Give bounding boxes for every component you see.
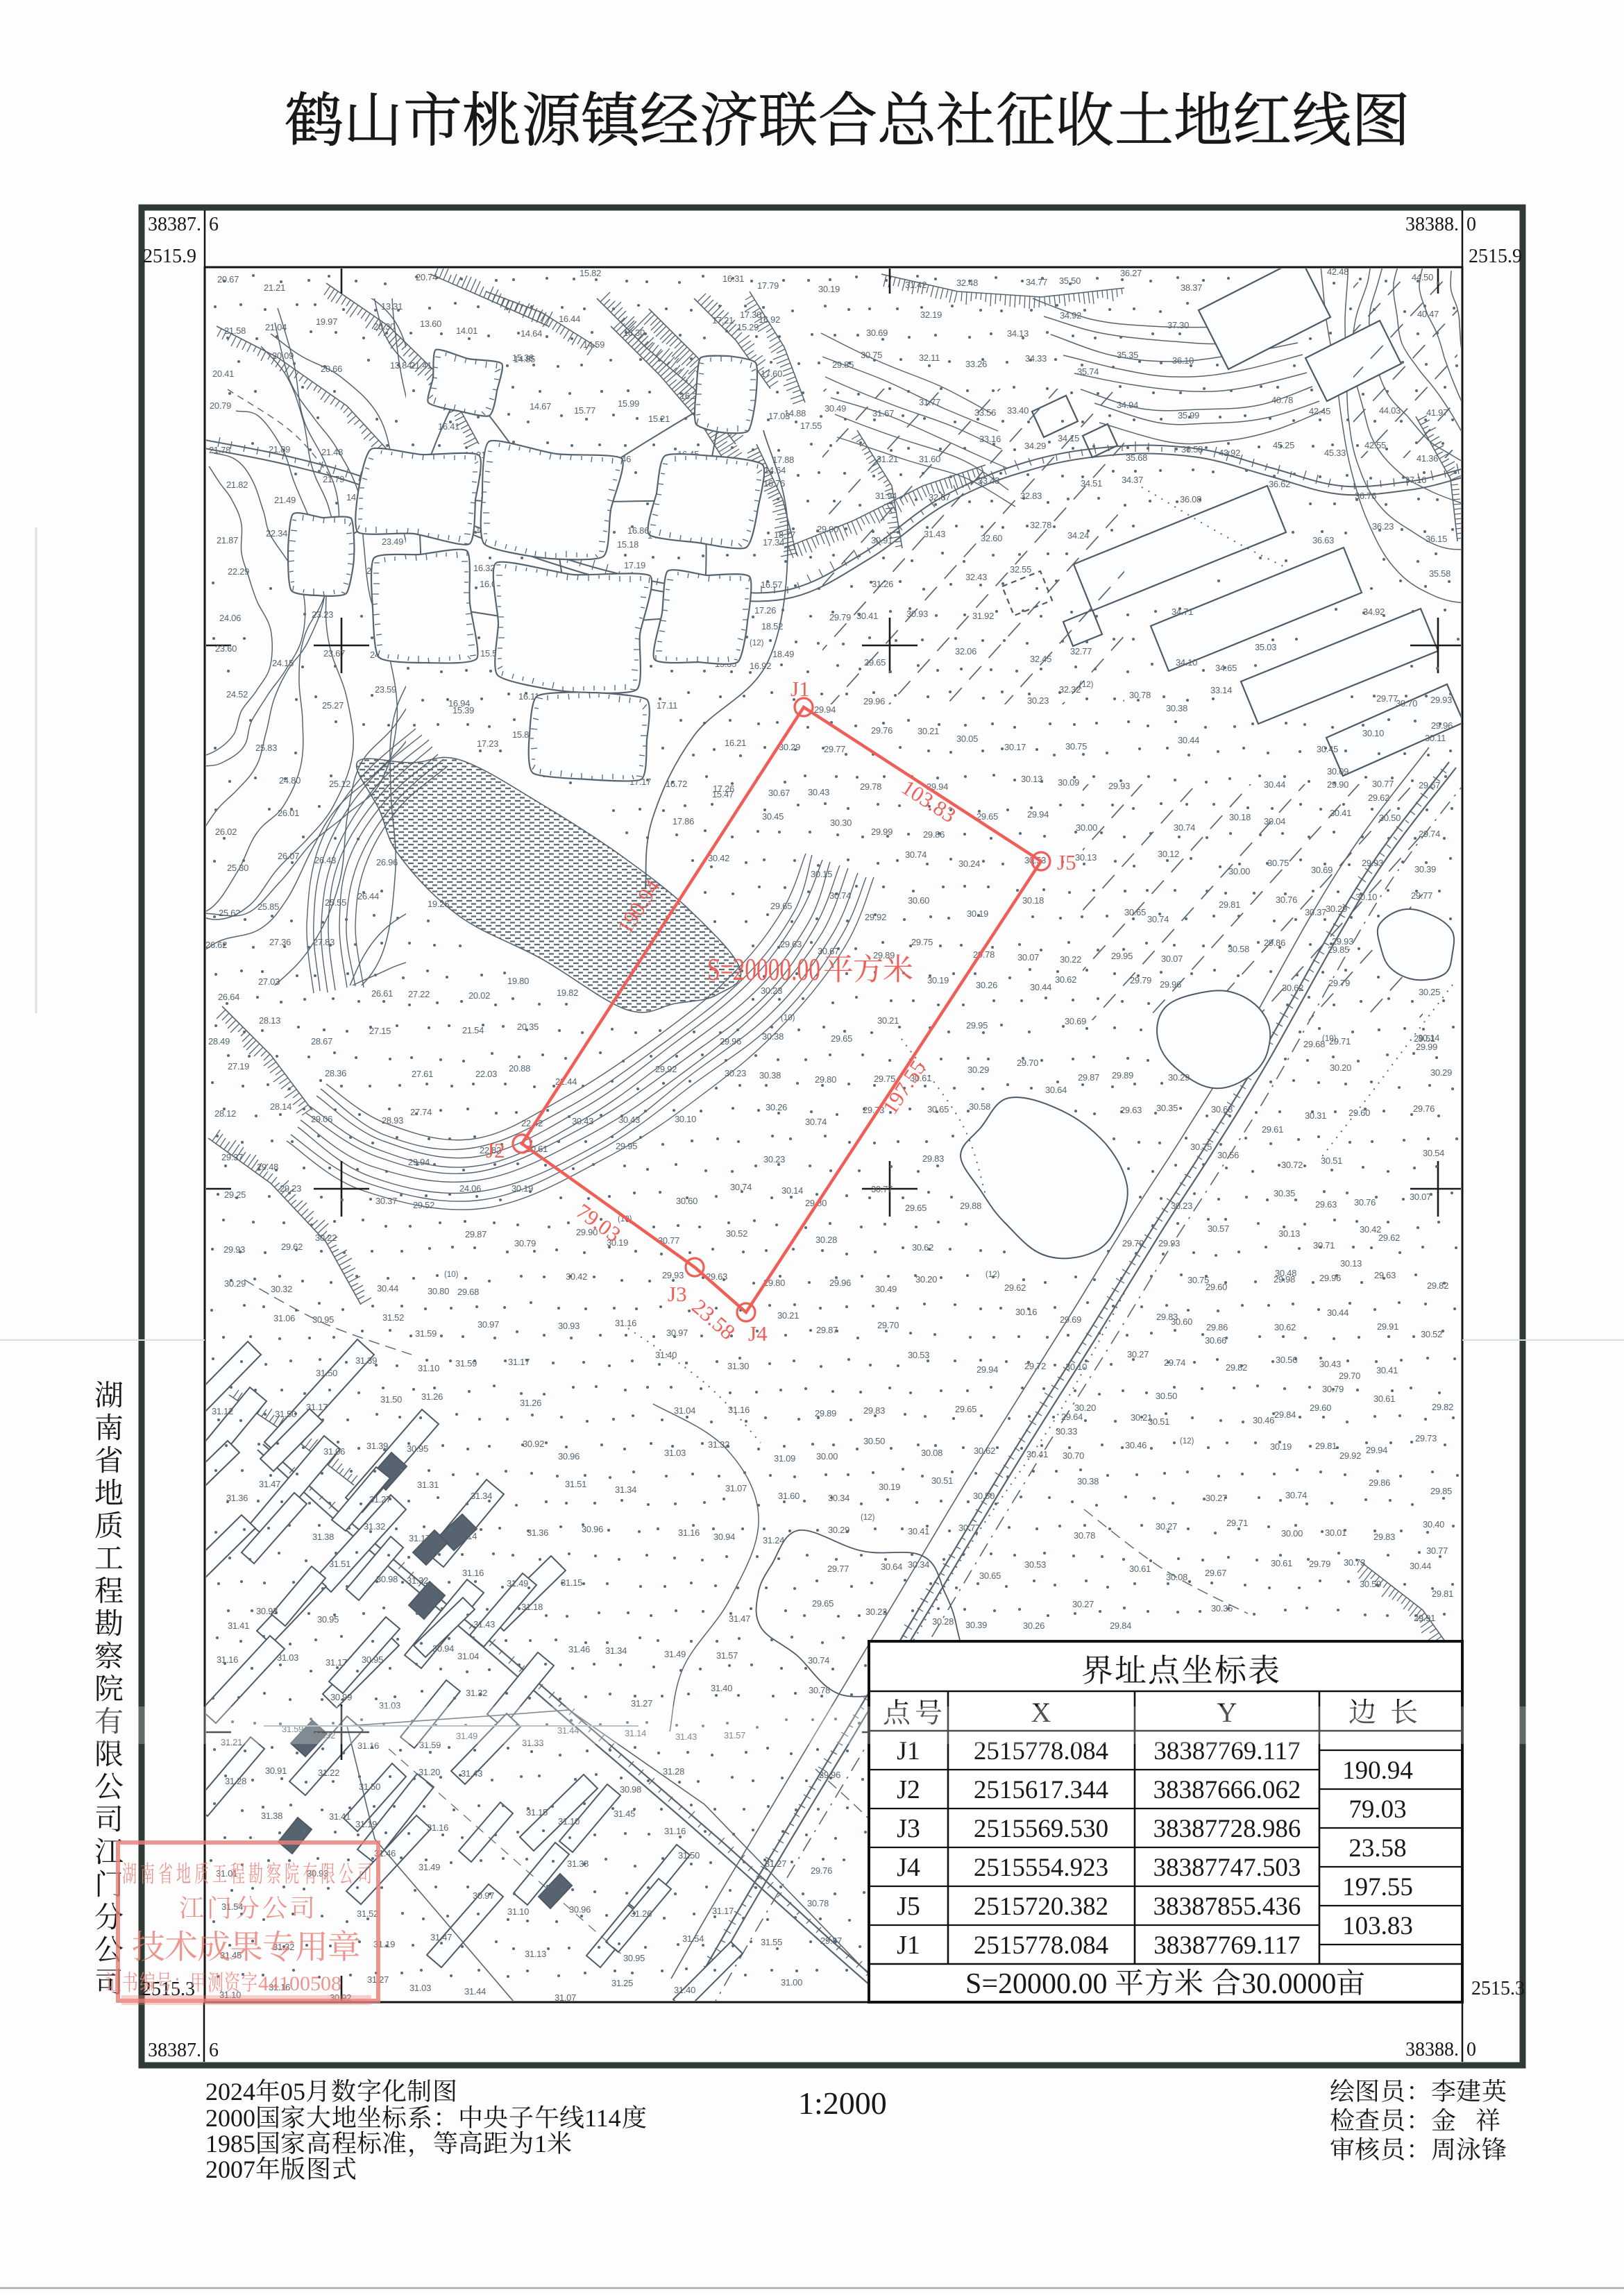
svg-text:30.49: 30.49 (824, 403, 846, 414)
svg-text:28.67: 28.67 (311, 1036, 332, 1047)
svg-text:17.26: 17.26 (754, 605, 776, 616)
svg-text:23.59: 23.59 (375, 684, 396, 695)
svg-text:31.10: 31.10 (507, 1906, 529, 1917)
svg-text:30.37: 30.37 (1305, 907, 1326, 917)
svg-text:31.17: 31.17 (712, 1906, 734, 1916)
svg-text:J5: J5 (1057, 850, 1076, 874)
svg-text:30.41: 30.41 (1330, 808, 1351, 818)
svg-text:35.50: 35.50 (1059, 276, 1081, 286)
svg-text:30.69: 30.69 (1065, 1016, 1086, 1026)
svg-text:41.97: 41.97 (1426, 407, 1448, 418)
svg-text:30.68: 30.68 (1211, 1104, 1233, 1115)
svg-text:30.19: 30.19 (927, 975, 949, 985)
svg-text:16.31: 16.31 (722, 273, 744, 284)
svg-text:21.54: 21.54 (462, 1025, 484, 1035)
svg-text:30.04: 30.04 (1264, 816, 1285, 827)
svg-text:31.44: 31.44 (464, 1986, 486, 1997)
svg-text:30.38: 30.38 (759, 1070, 781, 1081)
svg-text:30.23: 30.23 (1171, 1201, 1192, 1211)
svg-text:30.21: 30.21 (877, 1015, 899, 1026)
svg-text:32.78: 32.78 (1030, 520, 1051, 530)
svg-text:31.36: 31.36 (527, 1527, 548, 1538)
svg-text:33.14: 33.14 (1210, 685, 1232, 695)
svg-text:29.83: 29.83 (863, 1405, 885, 1416)
svg-text:30.26: 30.26 (976, 980, 997, 990)
svg-text:34.92: 34.92 (1060, 310, 1081, 321)
svg-text:38387747.503: 38387747.503 (1153, 1854, 1301, 1882)
svg-text:30.42: 30.42 (566, 1271, 587, 1282)
svg-text:29.73: 29.73 (1415, 1433, 1437, 1443)
svg-text:25.27: 25.27 (322, 700, 344, 711)
svg-text:30.40: 30.40 (1423, 1519, 1444, 1530)
svg-text:17.86: 17.86 (673, 816, 694, 827)
svg-text:30.96: 30.96 (558, 1451, 580, 1462)
svg-text:31.26: 31.26 (520, 1398, 541, 1408)
svg-text:29.87: 29.87 (816, 1325, 838, 1335)
svg-text:30.65: 30.65 (927, 1104, 949, 1115)
svg-text:29.67: 29.67 (1419, 780, 1440, 790)
svg-text:30.50: 30.50 (973, 1491, 995, 1501)
svg-text:29.78: 29.78 (860, 781, 881, 792)
svg-text:30.23: 30.23 (763, 1154, 785, 1165)
svg-text:30.54: 30.54 (1423, 1148, 1444, 1158)
svg-text:29.86: 29.86 (923, 829, 945, 840)
svg-text:30.23: 30.23 (761, 985, 782, 996)
svg-text:31.17: 31.17 (325, 1657, 347, 1668)
svg-text:29.96: 29.96 (863, 696, 885, 706)
svg-text:15.18: 15.18 (617, 539, 638, 550)
svg-text:25.12: 25.12 (329, 779, 350, 789)
svg-text:35.68: 35.68 (1126, 452, 1147, 463)
svg-text:27.36: 27.36 (269, 937, 291, 947)
svg-text:24.80: 24.80 (279, 775, 301, 786)
svg-text:35.74: 35.74 (1077, 366, 1099, 377)
svg-text:31.43: 31.43 (924, 529, 945, 539)
svg-text:30.01: 30.01 (1325, 1527, 1346, 1538)
svg-text:30.43: 30.43 (572, 1116, 593, 1126)
svg-text:30.96: 30.96 (582, 1524, 603, 1534)
svg-text:33.26: 33.26 (965, 359, 987, 369)
svg-text:29.63: 29.63 (1374, 1270, 1396, 1280)
svg-text:J2: J2 (486, 1138, 505, 1162)
svg-text:31.13: 31.13 (525, 1949, 546, 1959)
svg-text:16.32: 16.32 (473, 563, 495, 573)
svg-text:31.41: 31.41 (329, 1811, 350, 1822)
svg-text:31.21: 31.21 (877, 454, 898, 464)
svg-text:2024: 2024 (205, 2078, 255, 2106)
svg-text:38387.: 38387. (148, 2040, 201, 2061)
svg-text:30.20: 30.20 (1330, 1062, 1351, 1073)
svg-text:30.73: 30.73 (1344, 1557, 1365, 1568)
svg-text:29.82: 29.82 (1432, 1402, 1453, 1412)
svg-text:30.19: 30.19 (511, 1183, 533, 1194)
svg-text:31.16: 31.16 (728, 1405, 750, 1415)
svg-text:32.43: 32.43 (965, 572, 987, 582)
svg-text:29.95: 29.95 (1111, 951, 1133, 961)
svg-text:31.94: 31.94 (875, 491, 897, 501)
svg-text:30.97: 30.97 (473, 1890, 494, 1901)
svg-text:31.16: 31.16 (678, 1527, 700, 1538)
svg-text:30.93: 30.93 (906, 609, 928, 619)
svg-text:36.15: 36.15 (1426, 534, 1447, 544)
svg-text:31.50: 31.50 (359, 1781, 380, 1792)
svg-text:30.49: 30.49 (875, 1284, 897, 1294)
svg-text:29.96: 29.96 (829, 1278, 851, 1288)
svg-text:30.75: 30.75 (1190, 1142, 1212, 1152)
svg-text:30.43: 30.43 (808, 787, 829, 797)
svg-text:30.94: 30.94 (432, 1643, 454, 1654)
svg-text:38388.: 38388. (1405, 214, 1459, 235)
svg-text:30.10: 30.10 (1065, 1362, 1087, 1372)
svg-text:30.92: 30.92 (523, 1439, 544, 1449)
svg-text:15.38: 15.38 (512, 353, 534, 363)
svg-text:29.96: 29.96 (1160, 979, 1181, 990)
svg-text:27.74: 27.74 (410, 1107, 432, 1117)
svg-text:15.47: 15.47 (712, 789, 734, 799)
svg-text:30.26: 30.26 (1023, 1620, 1044, 1631)
svg-text:S=20000.00: S=20000.00 (707, 951, 820, 987)
svg-text:29.93: 29.93 (662, 1270, 684, 1280)
svg-text:31.25: 31.25 (611, 1978, 633, 1988)
svg-text:30.74: 30.74 (730, 1182, 752, 1192)
svg-text:15.21: 15.21 (648, 414, 670, 424)
svg-text:26.07: 26.07 (278, 851, 299, 861)
svg-text:29.89: 29.89 (873, 950, 895, 960)
svg-text:1985: 1985 (205, 2130, 255, 2158)
svg-text:15.77: 15.77 (574, 405, 595, 416)
svg-text:21.78: 21.78 (209, 445, 230, 455)
svg-text:35.03: 35.03 (1255, 642, 1276, 652)
svg-text:31.54: 31.54 (682, 1933, 704, 1944)
svg-text:2515554.923: 2515554.923 (974, 1854, 1108, 1882)
svg-text:30.19: 30.19 (818, 284, 840, 294)
svg-text:31.07: 31.07 (725, 1483, 747, 1493)
svg-text:34.77: 34.77 (1026, 277, 1047, 287)
svg-text:29.70: 29.70 (877, 1320, 899, 1330)
svg-text:30.27: 30.27 (1156, 1521, 1177, 1532)
svg-text:31.40: 31.40 (711, 1683, 732, 1693)
svg-text:29.93: 29.93 (223, 1244, 245, 1255)
svg-text:32.48: 32.48 (956, 278, 978, 288)
svg-text:0: 0 (1466, 2039, 1476, 2060)
svg-text:34.65: 34.65 (1215, 663, 1237, 673)
svg-text:30.59: 30.59 (1360, 1579, 1381, 1589)
svg-text:30.23: 30.23 (865, 1607, 887, 1617)
svg-text:30.08: 30.08 (1166, 1572, 1187, 1582)
svg-text:21.87: 21.87 (217, 535, 238, 545)
svg-text:30.35: 30.35 (1274, 1188, 1295, 1199)
svg-text:31.51: 31.51 (329, 1559, 350, 1569)
svg-text:30.29: 30.29 (1168, 1072, 1190, 1083)
svg-text:20.30: 20.30 (373, 321, 395, 332)
svg-text:29.83: 29.83 (922, 1153, 944, 1164)
svg-text:30.14: 30.14 (781, 1185, 803, 1196)
svg-text:30.33: 30.33 (1056, 1426, 1077, 1437)
svg-text:17.60: 17.60 (761, 369, 782, 379)
svg-text:34.24: 34.24 (1067, 530, 1089, 541)
svg-text:32.60: 32.60 (981, 533, 1002, 543)
svg-text:30.65: 30.65 (979, 1570, 1001, 1581)
svg-text:30.71: 30.71 (1313, 1240, 1335, 1251)
svg-text:30.46: 30.46 (1253, 1415, 1274, 1425)
svg-text:20.67: 20.67 (217, 274, 239, 285)
svg-text:20.74: 20.74 (416, 272, 437, 282)
svg-text:14.64: 14.64 (764, 465, 786, 475)
svg-text:2007: 2007 (205, 2156, 255, 2183)
svg-text:0: 0 (1466, 214, 1476, 235)
svg-text:31.49: 31.49 (418, 1862, 440, 1872)
svg-text:13.60: 13.60 (420, 319, 441, 329)
svg-text:30.62: 30.62 (1274, 1322, 1296, 1332)
svg-text:30.80: 30.80 (428, 1286, 449, 1296)
svg-text:14.88: 14.88 (784, 408, 806, 418)
svg-text:25.30: 25.30 (227, 863, 248, 873)
svg-text:17.11: 17.11 (657, 700, 677, 711)
svg-text:30.98: 30.98 (376, 1574, 398, 1584)
svg-text:32.06: 32.06 (955, 646, 976, 657)
svg-text:30.77: 30.77 (1372, 779, 1394, 789)
svg-text:30.91: 30.91 (871, 535, 893, 545)
svg-text:29.76: 29.76 (811, 1865, 832, 1876)
svg-text:30.19: 30.19 (1270, 1441, 1292, 1452)
svg-text:29.61: 29.61 (1262, 1124, 1283, 1135)
svg-text:36.58: 36.58 (1181, 444, 1203, 455)
svg-text:32.19: 32.19 (920, 310, 942, 320)
svg-text:30.05: 30.05 (956, 734, 978, 744)
svg-text:J4: J4 (897, 1853, 920, 1882)
svg-text:29.81: 29.81 (1315, 1441, 1337, 1451)
svg-text:30.07: 30.07 (1017, 952, 1039, 963)
svg-text:29.94: 29.94 (1027, 809, 1049, 820)
svg-text:30.31: 30.31 (1305, 1110, 1326, 1121)
svg-text:31.39: 31.39 (366, 1441, 388, 1451)
svg-text:29.86: 29.86 (1369, 1477, 1390, 1488)
svg-text:29.81: 29.81 (1219, 899, 1240, 910)
svg-text:31.49: 31.49 (507, 1578, 528, 1589)
svg-text:30.32: 30.32 (271, 1284, 292, 1294)
svg-text:31.39: 31.39 (355, 1355, 377, 1366)
svg-text:29.70: 29.70 (1339, 1371, 1360, 1381)
svg-text:30.14: 30.14 (1418, 1033, 1439, 1043)
svg-text:30.77: 30.77 (871, 1184, 893, 1194)
svg-text:24.15: 24.15 (272, 658, 294, 668)
svg-text:30.61: 30.61 (1129, 1564, 1151, 1574)
svg-text:30.75: 30.75 (1267, 858, 1289, 868)
svg-text:31.19: 31.19 (355, 1819, 377, 1829)
svg-text:31.12: 31.12 (212, 1406, 233, 1416)
svg-text:30.29: 30.29 (1326, 904, 1347, 914)
svg-text:17.23: 17.23 (477, 738, 498, 749)
svg-text:30.93: 30.93 (558, 1321, 580, 1331)
svg-text:31.10: 31.10 (418, 1363, 439, 1373)
svg-text:30.74: 30.74 (808, 1655, 829, 1666)
svg-text:35.99: 35.99 (1178, 410, 1199, 421)
svg-text:29.83: 29.83 (1156, 1312, 1178, 1322)
svg-text:31.00: 31.00 (781, 1977, 802, 1988)
svg-text:29.65: 29.65 (955, 1404, 976, 1414)
svg-text:30.60: 30.60 (908, 895, 929, 906)
svg-text:2515.9: 2515.9 (143, 246, 196, 267)
svg-text:29.62: 29.62 (1368, 793, 1389, 803)
svg-text:14.64: 14.64 (521, 328, 542, 339)
svg-text:45.25: 45.25 (1273, 440, 1294, 450)
svg-text:26.43: 26.43 (314, 855, 336, 865)
svg-text:30.22: 30.22 (1060, 954, 1081, 965)
svg-text:34.71: 34.71 (1172, 607, 1193, 617)
svg-text:30.34: 30.34 (828, 1493, 849, 1503)
svg-text:29.62: 29.62 (1004, 1282, 1026, 1293)
svg-text:29.91: 29.91 (1414, 1613, 1435, 1623)
svg-text:30.52: 30.52 (726, 1228, 747, 1239)
svg-text:30.00: 30.00 (1281, 1528, 1303, 1539)
svg-text:29.75: 29.75 (911, 937, 933, 947)
svg-text:16.44: 16.44 (559, 314, 580, 324)
svg-text:29.52: 29.52 (413, 1200, 434, 1210)
svg-text:31.03: 31.03 (664, 1448, 686, 1458)
svg-text:21.21: 21.21 (264, 282, 285, 293)
svg-text:30.78: 30.78 (1074, 1530, 1095, 1541)
svg-text:29.85: 29.85 (832, 359, 854, 370)
svg-text:30.62: 30.62 (912, 1242, 933, 1253)
svg-text:30.38: 30.38 (1166, 703, 1187, 713)
svg-text:30.76: 30.76 (1276, 895, 1297, 905)
svg-text:30.25: 30.25 (1419, 987, 1440, 997)
svg-text:22.34: 22.34 (266, 528, 287, 539)
svg-text:30.21: 30.21 (917, 726, 939, 736)
svg-text:J2: J2 (897, 1775, 920, 1804)
svg-text:31.26: 31.26 (872, 579, 893, 589)
svg-text:30.42: 30.42 (1360, 1224, 1381, 1235)
svg-text:31.17: 31.17 (306, 1402, 328, 1412)
svg-text:30.07: 30.07 (1161, 954, 1183, 964)
svg-text:38388.: 38388. (1405, 2039, 1459, 2060)
svg-text:29.63: 29.63 (1315, 1199, 1337, 1210)
svg-text:29.86: 29.86 (1206, 1322, 1228, 1332)
svg-text:30.57: 30.57 (1208, 1223, 1229, 1234)
svg-text:22.03: 22.03 (475, 1069, 497, 1079)
svg-text:30.72: 30.72 (1281, 1160, 1303, 1170)
svg-text:33.43: 33.43 (978, 475, 999, 486)
svg-text:29.65: 29.65 (905, 1203, 927, 1213)
svg-text:30.20: 30.20 (915, 1274, 937, 1285)
svg-text:29.63: 29.63 (780, 939, 802, 949)
svg-text:34.10: 34.10 (1176, 657, 1197, 668)
svg-text:31.16: 31.16 (427, 1822, 448, 1833)
svg-text:30.58: 30.58 (969, 1101, 990, 1112)
svg-text:30.66: 30.66 (1205, 1335, 1226, 1346)
svg-text:30.77: 30.77 (958, 1523, 980, 1533)
svg-text:30.67: 30.67 (818, 946, 839, 956)
svg-text:30.69: 30.69 (1311, 865, 1333, 875)
svg-text:30.61: 30.61 (1271, 1558, 1292, 1568)
svg-text:23.58: 23.58 (1348, 1834, 1406, 1863)
svg-text:29.96: 29.96 (1319, 1273, 1341, 1283)
svg-text:30.26: 30.26 (766, 1102, 787, 1112)
svg-text:37.16: 37.16 (1405, 475, 1426, 485)
svg-text:29.62: 29.62 (281, 1242, 303, 1252)
svg-text:30.50: 30.50 (1156, 1391, 1177, 1401)
svg-text:13.31: 13.31 (381, 301, 403, 312)
svg-text:29.76: 29.76 (871, 725, 893, 736)
svg-text:21.89: 21.89 (269, 444, 290, 455)
svg-text:29.76: 29.76 (1413, 1103, 1435, 1114)
svg-text:30.44: 30.44 (1030, 982, 1051, 992)
svg-text:15.99: 15.99 (618, 398, 639, 409)
svg-text:36.62: 36.62 (1269, 479, 1290, 489)
svg-text:34.33: 34.33 (1025, 353, 1047, 364)
svg-text:29.79: 29.79 (1328, 978, 1350, 988)
svg-text:31.38: 31.38 (261, 1811, 282, 1821)
svg-text:44.03: 44.03 (1379, 405, 1401, 416)
svg-text:30.45: 30.45 (1317, 744, 1338, 754)
svg-text:1:2000: 1:2000 (798, 2085, 887, 2121)
svg-text:31.24: 31.24 (763, 1535, 784, 1545)
svg-text:30.30: 30.30 (830, 818, 852, 828)
svg-text:31.14: 31.14 (455, 1531, 477, 1541)
svg-text:(10): (10) (444, 1271, 459, 1279)
svg-text:30.93: 30.93 (256, 1606, 278, 1616)
svg-text:30.50: 30.50 (863, 1436, 885, 1446)
svg-text:34.15: 34.15 (1058, 433, 1079, 443)
svg-text:36.76: 36.76 (1355, 491, 1376, 501)
svg-text:29.90: 29.90 (1327, 779, 1348, 790)
svg-text:30.41: 30.41 (856, 611, 878, 621)
svg-text:31.38: 31.38 (312, 1532, 334, 1542)
svg-text:28.93: 28.93 (382, 1115, 403, 1126)
svg-text:30.19: 30.19 (879, 1482, 900, 1492)
svg-text:31.32: 31.32 (466, 1688, 487, 1698)
svg-text:30.28: 30.28 (932, 1616, 954, 1627)
svg-text:30.35: 30.35 (1211, 1603, 1233, 1614)
svg-text:30.74: 30.74 (1174, 822, 1195, 833)
svg-text:29.77: 29.77 (1411, 890, 1432, 901)
svg-text:30.23: 30.23 (725, 1068, 746, 1078)
svg-text:31.50: 31.50 (380, 1394, 402, 1405)
svg-text:31.50: 31.50 (275, 1409, 296, 1419)
svg-text:31.03: 31.03 (409, 1983, 431, 1993)
svg-text:30.29: 30.29 (828, 1525, 849, 1535)
svg-text:21.82: 21.82 (226, 480, 248, 490)
svg-text:31.26: 31.26 (630, 1908, 652, 1919)
svg-text:30.65: 30.65 (1124, 907, 1146, 917)
svg-text:33.40: 33.40 (1007, 405, 1029, 416)
svg-text:26.64: 26.64 (218, 992, 239, 1002)
svg-text:6: 6 (209, 2040, 219, 2061)
svg-text:30.96: 30.96 (569, 1904, 591, 1915)
svg-text:21.49: 21.49 (274, 495, 296, 505)
svg-text:31.16: 31.16 (217, 1654, 238, 1665)
svg-text:16.94: 16.94 (448, 698, 470, 709)
svg-text:31.40: 31.40 (655, 1350, 677, 1360)
svg-text:30.74: 30.74 (1147, 914, 1169, 924)
svg-text:30.09: 30.09 (1058, 777, 1079, 788)
svg-text:29.94: 29.94 (814, 704, 836, 715)
svg-text:29.84: 29.84 (1110, 1620, 1131, 1631)
svg-text:29.72: 29.72 (1024, 1361, 1046, 1371)
svg-text:29.77: 29.77 (827, 1564, 849, 1574)
svg-text:29.84: 29.84 (1274, 1409, 1296, 1420)
svg-text:26.01: 26.01 (278, 808, 299, 818)
svg-text:42.45: 42.45 (1309, 406, 1330, 416)
svg-text:31.03: 31.03 (277, 1652, 298, 1663)
svg-text:2515569.530: 2515569.530 (974, 1815, 1108, 1843)
svg-text:31.92: 31.92 (972, 611, 994, 621)
svg-text:17.19: 17.19 (624, 560, 645, 570)
svg-text:30.09: 30.09 (1327, 766, 1348, 777)
svg-text:18.49: 18.49 (772, 649, 794, 659)
svg-text:30.74: 30.74 (905, 849, 927, 860)
svg-text:31.32: 31.32 (364, 1521, 385, 1532)
